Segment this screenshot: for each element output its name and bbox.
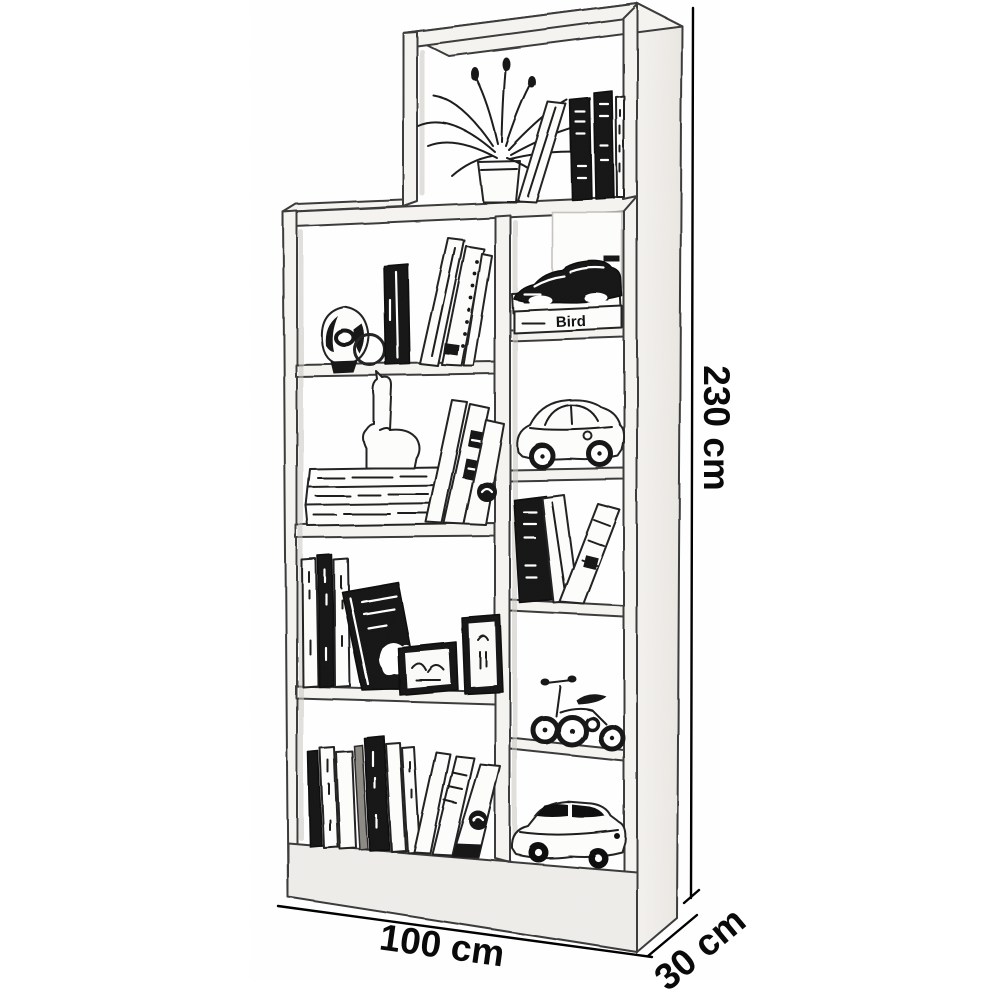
book-spine-label: Bird	[556, 313, 587, 331]
paper-grain	[250, 0, 720, 980]
sketch-canvas: 230 cm 100 cm 30 cm Bird	[0, 0, 1000, 1000]
height-dimension-label: 230 cm	[696, 365, 737, 491]
bookshelf-dimension-diagram: 230 cm 100 cm 30 cm Bird	[0, 0, 1000, 1000]
